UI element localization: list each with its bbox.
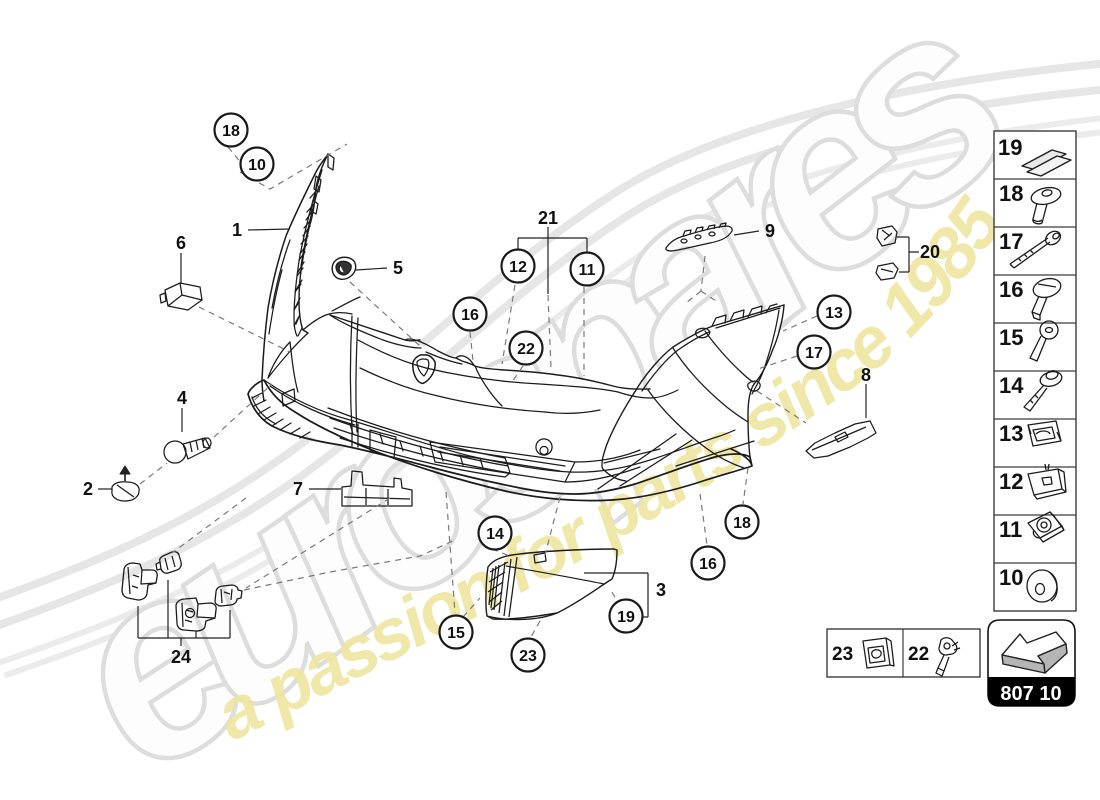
svg-text:3: 3 — [656, 580, 666, 600]
svg-text:18: 18 — [733, 515, 751, 532]
svg-text:21: 21 — [538, 208, 558, 228]
svg-text:18: 18 — [222, 123, 240, 140]
svg-text:6: 6 — [176, 233, 186, 253]
svg-text:19: 19 — [617, 609, 635, 626]
svg-text:4: 4 — [177, 388, 187, 408]
svg-text:17: 17 — [999, 229, 1023, 254]
svg-text:13: 13 — [999, 421, 1023, 446]
svg-text:11: 11 — [579, 262, 596, 279]
svg-text:1: 1 — [232, 220, 242, 240]
svg-text:23: 23 — [519, 648, 537, 665]
svg-text:15: 15 — [999, 325, 1023, 350]
svg-text:14: 14 — [999, 373, 1024, 398]
svg-text:12: 12 — [509, 259, 527, 276]
svg-text:10: 10 — [999, 565, 1023, 590]
svg-text:807 10: 807 10 — [1000, 683, 1061, 705]
svg-text:11: 11 — [999, 517, 1022, 542]
svg-text:16: 16 — [999, 277, 1023, 302]
svg-text:16: 16 — [461, 307, 479, 324]
svg-text:15: 15 — [447, 625, 465, 642]
svg-text:13: 13 — [825, 305, 843, 322]
svg-text:23: 23 — [832, 644, 853, 665]
svg-text:24: 24 — [171, 647, 191, 667]
svg-text:14: 14 — [486, 526, 504, 543]
svg-text:20: 20 — [920, 242, 940, 262]
svg-text:16: 16 — [699, 556, 717, 573]
svg-text:22: 22 — [908, 644, 929, 665]
svg-text:2: 2 — [83, 479, 93, 499]
svg-text:7: 7 — [293, 479, 303, 499]
svg-text:8: 8 — [861, 365, 871, 385]
svg-text:18: 18 — [999, 181, 1023, 206]
svg-text:10: 10 — [248, 157, 266, 174]
svg-text:5: 5 — [393, 258, 403, 278]
svg-text:17: 17 — [805, 345, 823, 362]
svg-text:22: 22 — [517, 341, 535, 358]
svg-text:12: 12 — [999, 469, 1023, 494]
svg-text:19: 19 — [998, 135, 1022, 160]
svg-text:9: 9 — [765, 221, 775, 241]
